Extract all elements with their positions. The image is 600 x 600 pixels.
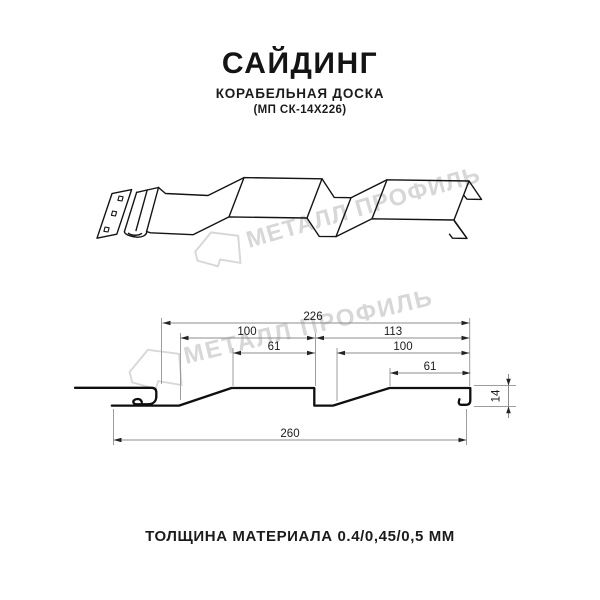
product-drawing-page: САЙДИНГ КОРАБЕЛЬНАЯ ДОСКА (МП СК-14Х226)…: [0, 0, 600, 600]
dim-label-260: 260: [280, 428, 299, 440]
dim-label-226: 226: [303, 311, 322, 323]
dim-label-100-left: 100: [237, 326, 256, 338]
profile-back-flange: [75, 388, 156, 397]
metal-profile-pentagon-logo: [195, 232, 240, 266]
watermark-upper: МЕТАЛЛ ПРОФИЛЬ: [195, 161, 483, 266]
watermark-text: МЕТАЛЛ ПРОФИЛЬ: [243, 161, 483, 253]
nail-holes: [104, 196, 123, 232]
material-thickness-note: ТОЛЩИНА МАТЕРИАЛА 0.4/0,45/0,5 ММ: [0, 529, 600, 545]
dim-14: [506, 374, 511, 418]
dim-label-61-right: 61: [424, 361, 437, 373]
dim-label-113: 113: [384, 326, 402, 338]
metal-profile-pentagon-logo: [130, 350, 182, 389]
dim-label-100-right: 100: [393, 341, 412, 353]
profile-outline: [75, 388, 470, 406]
dim-label-61-left: 61: [268, 341, 281, 353]
dim-label-14: 14: [491, 389, 503, 402]
technical-drawing: МЕТАЛЛ ПРОФИЛЬ МЕТАЛЛ ПРОФИЛЬ: [0, 0, 600, 600]
profile-main: [112, 388, 471, 406]
profile-lock-curl: [133, 397, 156, 405]
nail-strip: [97, 190, 132, 239]
